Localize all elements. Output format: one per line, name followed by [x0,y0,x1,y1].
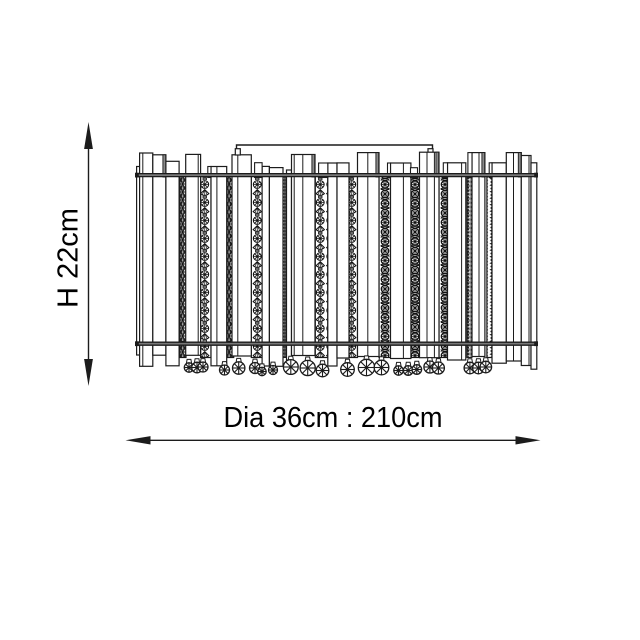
svg-text:Dia 36cm : 210cm: Dia 36cm : 210cm [224,402,443,434]
svg-text:H 22cm: H 22cm [53,208,85,308]
